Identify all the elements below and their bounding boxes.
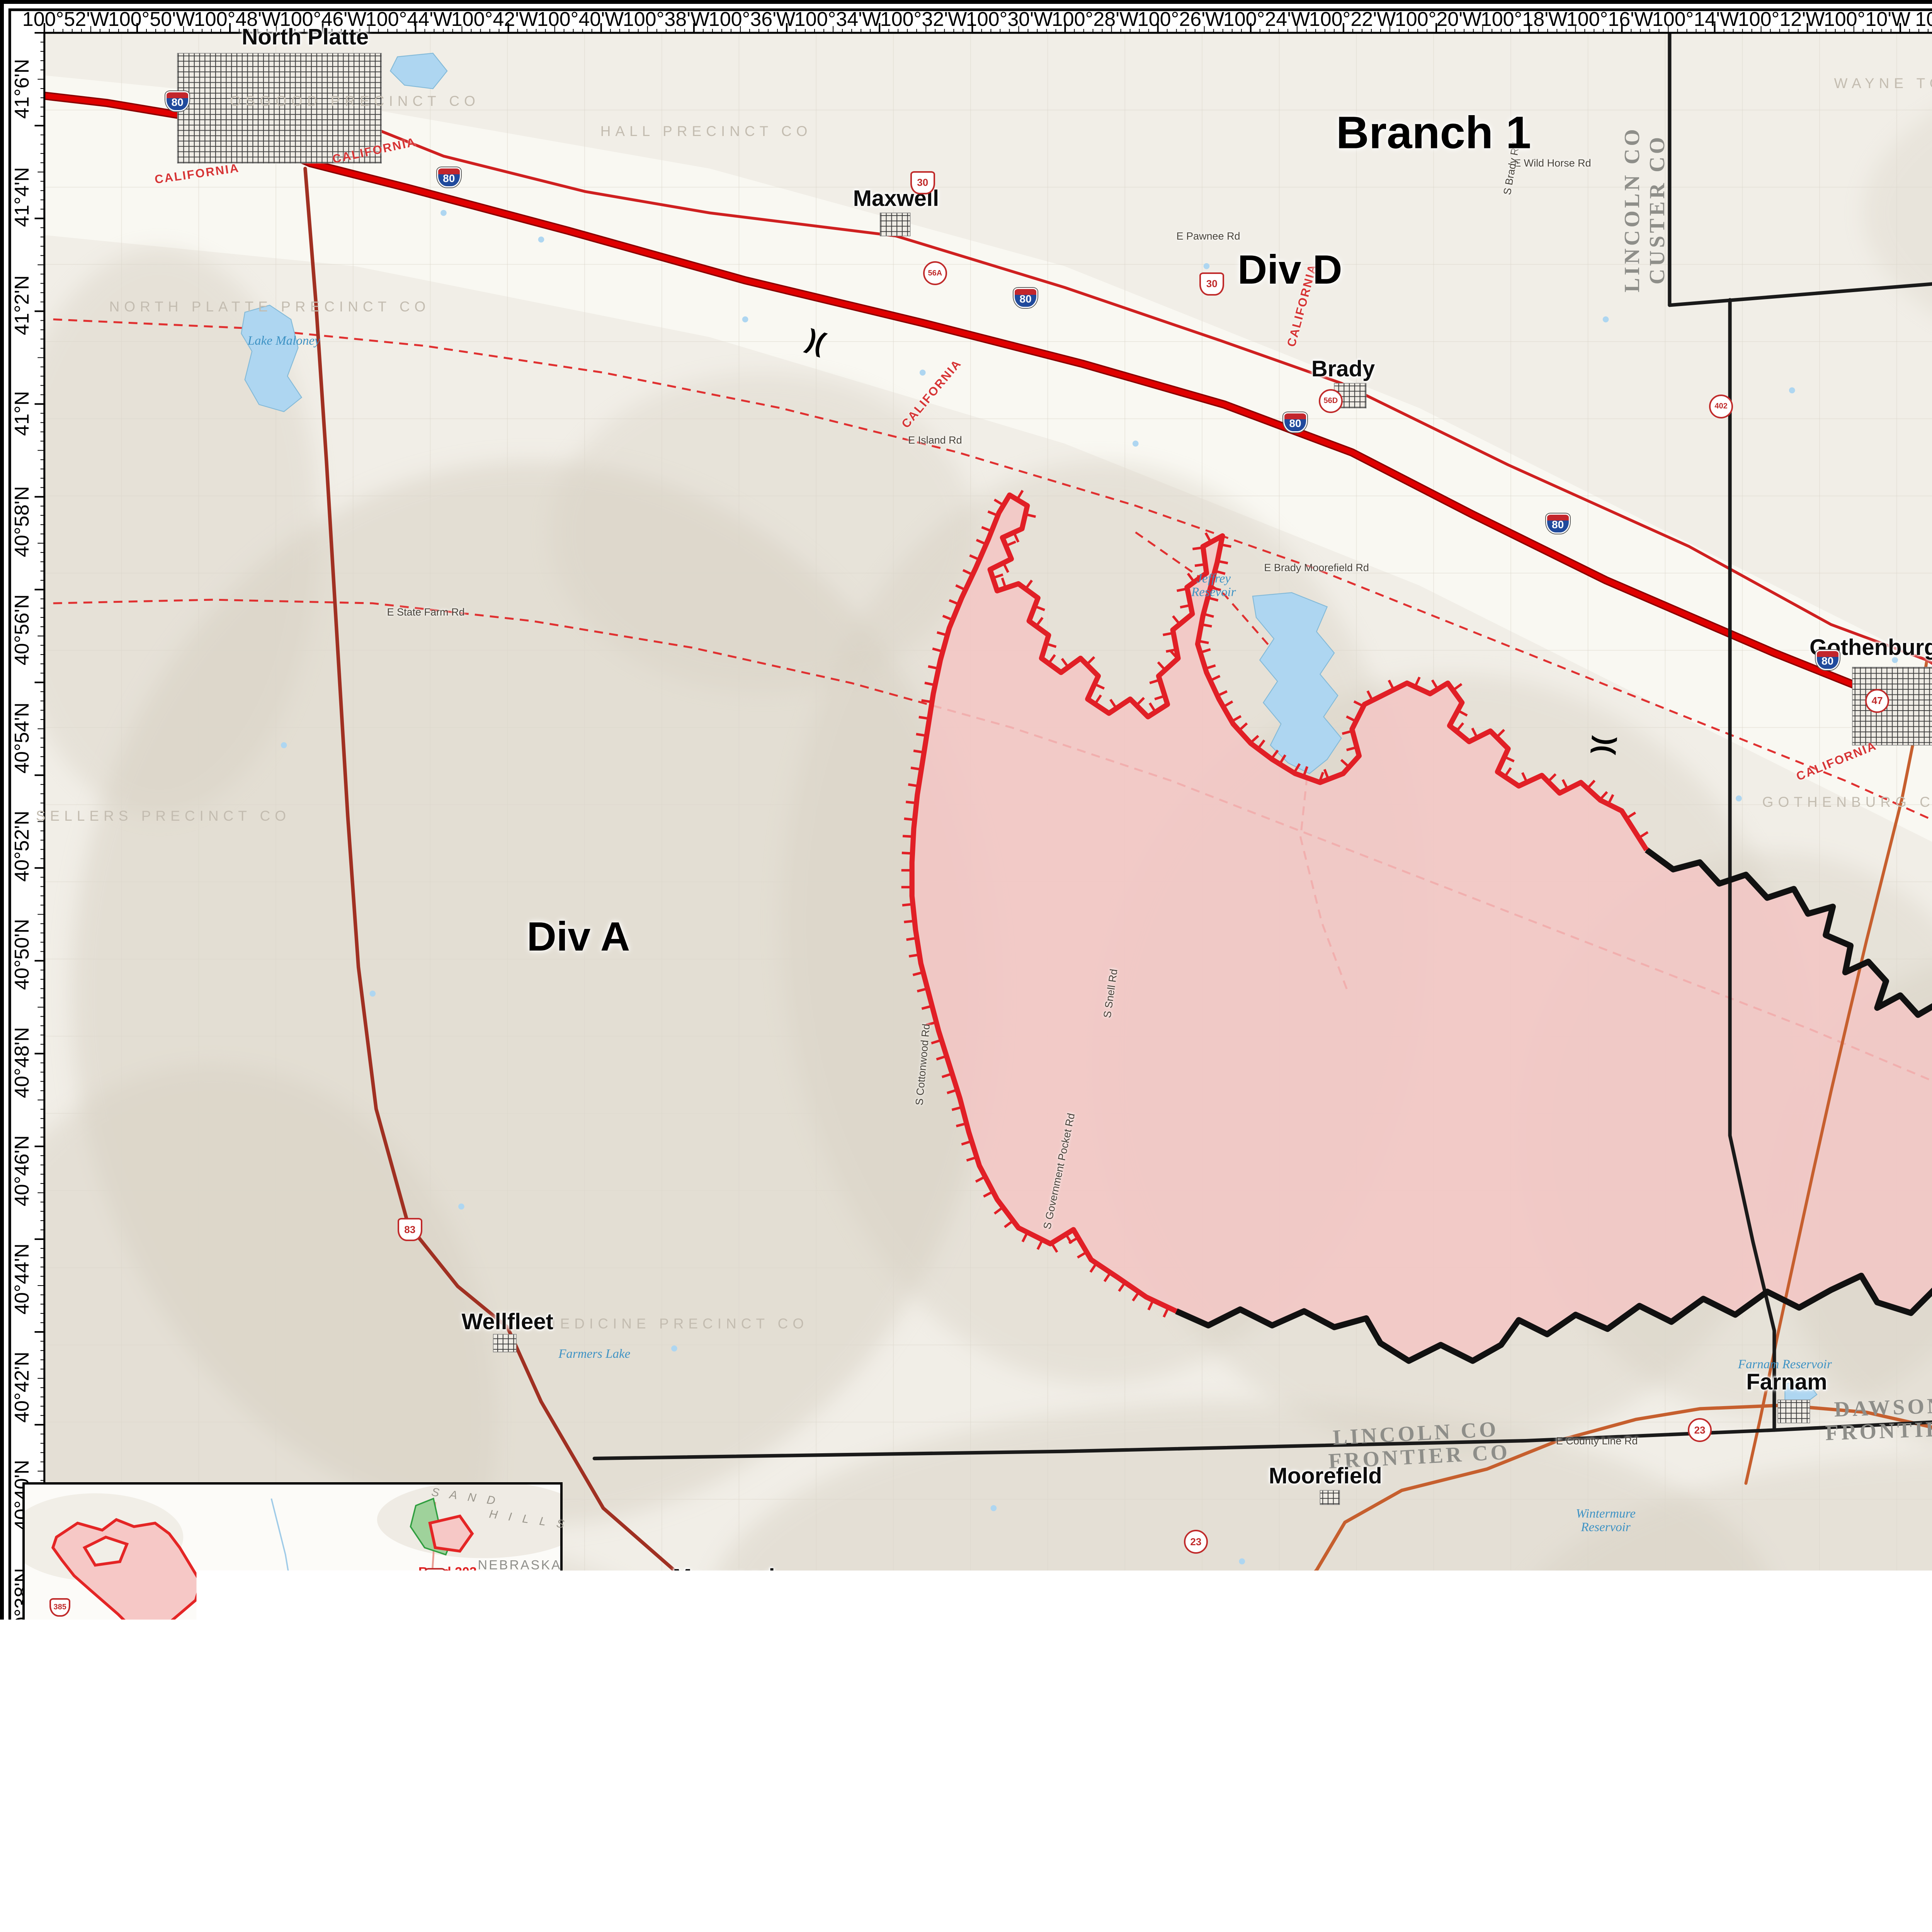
inset-route-385-shield: 385 xyxy=(49,1598,70,1617)
legend-item: Uncontained Fire Edge xyxy=(773,1903,1049,1932)
inset-interstate-76-shield: 76 xyxy=(97,1701,115,1717)
legend-swatch-road xyxy=(1182,1886,1252,1889)
legend-item: Secondary Highway xyxy=(1182,1839,1434,1871)
legend-column-3: ResevoirFederal State County ParksWorld … xyxy=(1592,1839,1909,1932)
legend-label: Uncontained Fire Edge xyxy=(848,1908,1049,1931)
legend-label: World Hillshade xyxy=(1667,1908,1804,1931)
legend-label: Contained Fire Edge xyxy=(848,1876,1029,1899)
legend-swatch-contained xyxy=(773,1885,842,1890)
inset-labels-layer: MorrillRoad 203CottonwoodNEBRASKAS A N D… xyxy=(25,1485,560,1766)
inset-fire-label: Cottonwood xyxy=(441,1717,517,1732)
legend-item: Federal State County Parks xyxy=(1592,1871,1909,1903)
legend-item: National Trail xyxy=(1182,1903,1434,1932)
legend-label: National Trail xyxy=(1257,1908,1372,1931)
legend-swatch-parks xyxy=(1592,1868,1662,1907)
inset-label: S A N D xyxy=(430,1486,500,1508)
incident-name: Cottonwood xyxy=(43,1921,452,1932)
legend-item: Wildfire Perimeter xyxy=(773,1839,1049,1871)
legend-column-1: Wildfire PerimeterContained Fire EdgeUnc… xyxy=(773,1839,1049,1932)
legend-item: World Hillshade xyxy=(1592,1903,1909,1932)
legend-label: Secondary Highway xyxy=(1257,1844,1433,1867)
title-block: PIO Cottonwood NE-NES-260161 03/17/2026 … xyxy=(43,1830,452,1932)
legend-swatch-secondary xyxy=(1182,1854,1252,1857)
legend-label: Road, Unspecified xyxy=(1257,1876,1418,1899)
inset-label: H I L L S xyxy=(488,1508,569,1532)
inset-label: North Platte xyxy=(373,1659,430,1671)
legend-swatch-trailred xyxy=(1182,1918,1252,1920)
wildfire-map-page: 100°52'W100°50'W100°48'W100°46'W100°44'W… xyxy=(0,0,1932,1932)
legend-column-2: Secondary HighwayRoad, UnspecifiedNation… xyxy=(1182,1839,1434,1932)
legend-item: Resevoir xyxy=(1592,1839,1909,1871)
legend-swatch-fire xyxy=(773,1835,842,1876)
legend-label: Resevoir xyxy=(1667,1844,1745,1867)
inset-label: Julesburg xyxy=(142,1690,189,1703)
map-type-title: PIO xyxy=(43,1830,452,1913)
legend-label: Federal State County Parks xyxy=(1667,1876,1909,1899)
legend-label: Wildfire Perimeter xyxy=(848,1844,1004,1867)
inset-route-83-shield: 83 xyxy=(425,1568,446,1587)
inset-interstate-80-shield: 80 xyxy=(262,1664,280,1680)
inset-fire-label: Morrill xyxy=(114,1647,154,1662)
inset-label: Lexington xyxy=(512,1708,559,1720)
legend-swatch-uncontained xyxy=(773,1912,842,1927)
inset-label: NEBRASKA xyxy=(478,1558,562,1573)
legend-item: Road, Unspecified xyxy=(1182,1871,1434,1903)
vicinity-inset-map: MorrillRoad 203CottonwoodNEBRASKAS A N D… xyxy=(22,1482,563,1768)
